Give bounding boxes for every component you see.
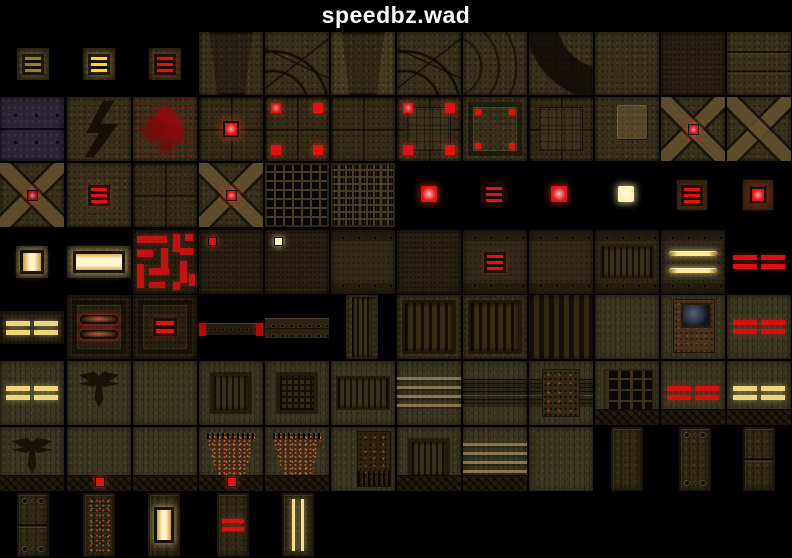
ventband-layer	[600, 245, 654, 279]
frame2-layer	[743, 180, 773, 210]
bolts-layer	[19, 495, 47, 555]
ventframed-layer	[402, 300, 456, 354]
texture-tile-beam-riveted[interactable]	[265, 318, 329, 339]
split-layer	[745, 429, 773, 489]
base-layer	[595, 409, 659, 425]
pairs-layer	[6, 321, 58, 335]
insetgrid-layer	[407, 107, 451, 151]
trapcircuit-layer	[273, 433, 321, 477]
xcross-layer	[0, 163, 64, 227]
ventsq-layer	[211, 373, 251, 413]
texture-tile-cross-light-red[interactable]	[661, 97, 725, 161]
texture-tile-strip-red-pairs[interactable]	[727, 245, 791, 278]
trap-layer	[331, 32, 395, 95]
minilight-layer	[208, 237, 217, 246]
texture-tile-wall-dark-stripes[interactable]	[529, 295, 593, 359]
texture-tile-door-circuit[interactable]	[83, 493, 115, 557]
baselight-layer	[227, 477, 237, 487]
texture-tile-wall-riveted2[interactable]	[529, 230, 593, 294]
texture-tile-floor-lights-corners[interactable]	[265, 97, 329, 161]
xcross-layer	[661, 97, 725, 161]
bolts-layer	[681, 429, 709, 489]
texture-tile-vent-framed-b[interactable]	[463, 295, 527, 359]
texture-tile-olive-yellow-pairs-base[interactable]	[727, 361, 791, 425]
texture-tile-slats-narrow[interactable]	[346, 295, 378, 359]
texture-tile-wall-conduit-bolt[interactable]	[67, 97, 131, 161]
ventframed-layer	[468, 300, 522, 354]
texture-tile-light-white-spike[interactable]	[617, 185, 635, 203]
bars3-layer	[25, 57, 41, 72]
doorbars-layer	[222, 519, 244, 531]
bars3-layer	[684, 188, 700, 203]
dotglow-layer	[688, 124, 699, 135]
texture-tile-light-sm-yellow[interactable]	[83, 48, 115, 80]
texture-tile-cross-light-red2[interactable]	[199, 163, 263, 227]
texture-tile-cross-plain[interactable]	[727, 97, 791, 161]
doorwindow-layer	[154, 507, 174, 543]
glowfill-layer	[421, 186, 437, 202]
machinery-layer	[542, 369, 580, 417]
texture-tile-light-red-bars[interactable]	[485, 185, 503, 203]
hstripes-layer	[397, 377, 461, 409]
texture-tile-arch-keystone-dark[interactable]	[199, 32, 263, 95]
capsules-layer	[80, 315, 118, 339]
ends-layer	[199, 323, 263, 336]
baselight-layer	[95, 477, 105, 487]
texture-tile-beam-thin[interactable]	[199, 323, 263, 336]
split-layer	[19, 495, 47, 555]
pairs-layer	[733, 386, 785, 400]
texture-tile-strip-yellow-pairs[interactable]	[0, 311, 64, 344]
texture-tile-panel-corner-lights[interactable]	[463, 97, 527, 161]
arcdark-layer	[529, 32, 593, 95]
dotglow-layer	[27, 190, 38, 201]
trapcircuit-layer	[207, 433, 255, 477]
strips2-layer	[669, 240, 717, 284]
gratewin-layer	[604, 369, 654, 415]
texture-tile-wall-hatch-panel[interactable]	[595, 97, 659, 161]
texture-tile-olive-tech-strip[interactable]	[463, 361, 527, 425]
seams-layer	[727, 32, 791, 95]
texture-tile-arch-stones[interactable]	[265, 32, 329, 95]
glowfill-layer	[618, 186, 634, 202]
texture-tile-wall-terminal[interactable]	[661, 295, 725, 359]
texture-tile-wall-mini-light-white[interactable]	[265, 230, 329, 294]
techstrip-layer	[529, 379, 593, 407]
frame-layer	[72, 300, 126, 354]
texture-tile-light-sm-red[interactable]	[149, 48, 181, 80]
slatsv-layer	[352, 297, 372, 357]
base-layer	[133, 475, 197, 491]
wad-filename-title: speedbz.wad	[0, 2, 792, 29]
techstrip-layer	[463, 379, 527, 407]
texture-tile-light-sm-yellow-dim[interactable]	[17, 48, 49, 80]
texture-tile-olive-red-pairs-base[interactable]	[661, 361, 725, 425]
dotglow-layer	[226, 190, 237, 201]
texture-tile-door-planks-bolts[interactable]	[679, 427, 711, 491]
texture-tile-olive-base-plain[interactable]	[133, 427, 197, 491]
texture-tile-arch-curve-lines[interactable]	[463, 32, 527, 95]
texture-tile-arch-curve-dark[interactable]	[529, 32, 593, 95]
base-layer	[727, 409, 791, 425]
xcross-layer	[727, 97, 791, 161]
texture-tile-wall-blood[interactable]	[133, 97, 197, 161]
xcross-layer	[199, 163, 263, 227]
stones-layer	[397, 32, 461, 95]
glowc-layer	[750, 187, 766, 203]
texture-tile-olive-vent-slats[interactable]	[199, 361, 263, 425]
texture-tile-arch-keystone[interactable]	[331, 32, 395, 95]
texture-tile-wall-mini-light-red[interactable]	[199, 230, 263, 294]
texture-tile-olive-vent-base[interactable]	[397, 427, 461, 491]
texture-tile-wall-vent-band[interactable]	[595, 230, 659, 294]
texture-tile-olive-circuit-board[interactable]	[331, 427, 395, 491]
window-layer	[20, 250, 44, 274]
texture-tile-light-framed-red[interactable]	[742, 179, 774, 211]
texture-tile-olive-grate-window[interactable]	[595, 361, 659, 425]
base-layer	[199, 475, 263, 491]
texture-tile-plate-rivets[interactable]	[0, 97, 64, 161]
doorcircuit-layer	[88, 498, 110, 552]
bars3-layer	[487, 255, 503, 270]
texture-tile-wall-red-pairs[interactable]	[727, 295, 791, 359]
texture-tile-olive-base-light[interactable]	[67, 427, 131, 491]
texture-tile-olive-circuit-trap[interactable]	[265, 427, 329, 491]
ventband-layer	[336, 376, 390, 410]
texture-tile-floor-tiles[interactable]	[133, 163, 197, 227]
texture-tile-floor-lights-corners-grid[interactable]	[397, 97, 461, 161]
texture-tile-olive-planks[interactable]	[529, 427, 593, 491]
corners-layer	[271, 103, 281, 113]
wad-texture-browser: speedbz.wad	[0, 0, 792, 558]
texture-tile-wall-dark[interactable]	[661, 32, 725, 95]
stones-layer	[265, 32, 329, 95]
base-layer	[0, 475, 64, 491]
texture-tile-olive-emblem-base[interactable]	[0, 427, 64, 491]
texture-tile-olive-vent-grid[interactable]	[265, 361, 329, 425]
texture-tile-vent-framed-a[interactable]	[397, 295, 461, 359]
texture-tile-door-planks-split[interactable]	[743, 427, 775, 491]
texture-tile-wall-red-bars-box[interactable]	[463, 230, 527, 294]
bars3-layer	[486, 187, 502, 202]
frame-layer	[138, 300, 192, 354]
texture-tile-olive-emblem[interactable]	[67, 361, 131, 425]
texture-tile-wall-yellow-strips[interactable]	[661, 230, 725, 294]
bars3-layer	[157, 57, 173, 72]
texture-tile-cross-light-dim[interactable]	[0, 163, 64, 227]
emblem-layer	[77, 371, 121, 411]
ventsq-layer	[409, 439, 449, 479]
pipes-layer	[133, 230, 197, 294]
texture-tile-door-red-bars[interactable]	[217, 493, 249, 557]
minilight-layer	[274, 237, 283, 246]
texture-tile-door-metal-bolts[interactable]	[17, 493, 49, 557]
bars3-layer	[91, 57, 107, 72]
blood-layer	[133, 97, 197, 161]
pairs-layer	[733, 320, 785, 334]
texture-tile-light-window-wide[interactable]	[67, 246, 131, 278]
arcs-layer	[463, 32, 527, 95]
texture-tile-grate-dark[interactable]	[265, 163, 329, 227]
bars2-layer	[156, 321, 174, 333]
texture-tile-olive-circuit-trap-light[interactable]	[199, 427, 263, 491]
ventsqgrid-layer	[277, 373, 317, 413]
texture-tile-floor-plain[interactable]	[331, 97, 395, 161]
texture-tile-door-yellow-strips[interactable]	[282, 493, 314, 557]
insetgrid-layer	[539, 107, 583, 151]
texture-tile-panel-red-bars-sm[interactable]	[133, 295, 197, 359]
pairs-layer	[733, 255, 785, 269]
bars3-layer	[91, 188, 107, 203]
texture-tile-light-red-spike[interactable]	[550, 185, 568, 203]
texture-tile-wall-seams[interactable]	[727, 32, 791, 95]
corners-layer	[403, 103, 413, 113]
texture-tile-door-planks[interactable]	[611, 427, 643, 491]
emblem-layer	[10, 437, 54, 477]
pairs-layer	[6, 386, 58, 400]
terminal-layer	[673, 299, 715, 353]
texture-tile-olive-yellow-pairs[interactable]	[0, 361, 64, 425]
pairs-layer	[667, 386, 719, 400]
texture-tile-olive-stripes-base[interactable]	[463, 427, 527, 491]
texture-tile-olive-machinery[interactable]	[529, 361, 593, 425]
texture-tile-olive-stripes[interactable]	[397, 361, 461, 425]
texture-tile-olive-vent-band[interactable]	[331, 361, 395, 425]
base-layer	[463, 475, 527, 491]
trap-layer	[199, 32, 263, 95]
frame2-layer	[677, 180, 707, 210]
doorvstrips-layer	[292, 499, 304, 551]
glowfill-layer	[551, 186, 567, 202]
texture-tile-light-window-sm[interactable]	[16, 246, 48, 278]
texture-tile-light-framed-bars[interactable]	[676, 179, 708, 211]
base-layer	[265, 475, 329, 491]
texture-tile-wall-olive-plain[interactable]	[595, 295, 659, 359]
texture-tile-wall-rough[interactable]	[397, 230, 461, 294]
texture-tile-grate-dense[interactable]	[331, 163, 395, 227]
windowwide-layer	[73, 251, 125, 273]
texture-tile-wall-red-bars[interactable]	[67, 163, 131, 227]
texture-tile-floor-inset-grid[interactable]	[529, 97, 593, 161]
glowc-layer	[223, 121, 239, 137]
texture-tile-wall-plain[interactable]	[595, 32, 659, 95]
texture-tile-wall-riveted[interactable]	[331, 230, 395, 294]
zigzag-layer	[67, 97, 131, 161]
cornerdots-layer	[475, 109, 481, 115]
circuit-layer	[357, 431, 391, 487]
base-layer	[397, 475, 461, 491]
texture-tile-door-light-window[interactable]	[148, 493, 180, 557]
base-layer	[67, 475, 131, 491]
texture-tile-panel-red-capsules[interactable]	[67, 295, 131, 359]
base-layer	[661, 409, 725, 425]
texture-tile-arch-corner-stones[interactable]	[397, 32, 461, 95]
texture-tile-light-red-sq[interactable]	[420, 185, 438, 203]
panellight-layer	[617, 105, 647, 139]
texture-tile-floor-light-center[interactable]	[199, 97, 263, 161]
hstripes-layer	[463, 443, 527, 475]
frame-layer	[468, 102, 522, 156]
texture-tile-pipes-red-maze[interactable]	[133, 230, 197, 294]
texture-tile-olive-plain[interactable]	[133, 361, 197, 425]
